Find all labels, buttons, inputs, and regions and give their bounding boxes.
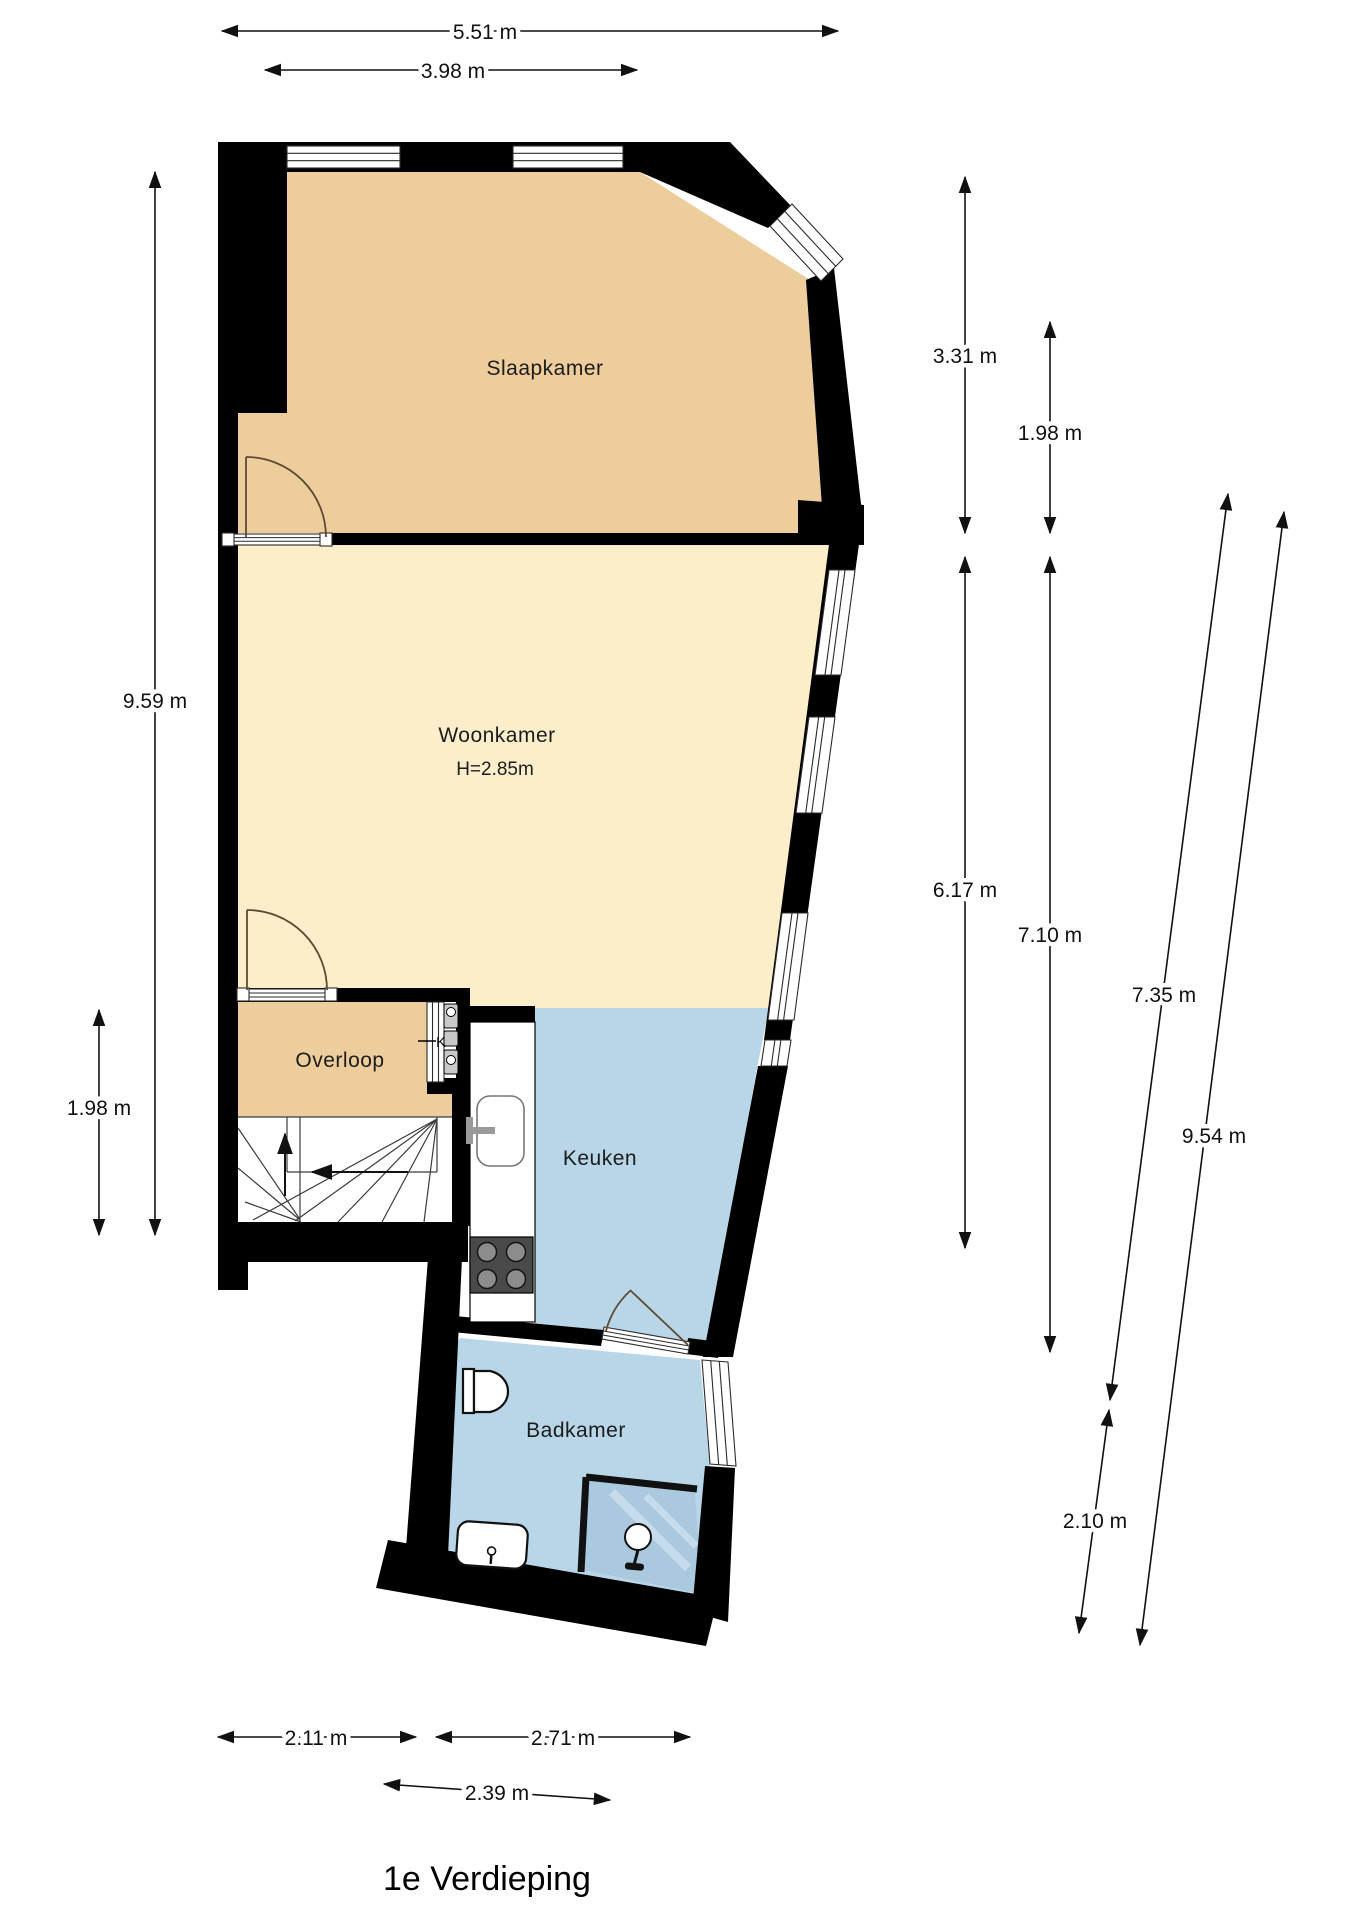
room-label-badkamer: Badkamer: [526, 1419, 626, 1442]
dim-label-right-outer3: 2.10 m: [1063, 1510, 1127, 1533]
window-top-right: [513, 146, 623, 168]
kitchen-fixtures: [466, 1022, 535, 1322]
wall-stairs-right: [452, 1094, 470, 1226]
wall-stairs-bottom: [218, 1222, 468, 1262]
dim-label-right-outer: 7.35 m: [1132, 984, 1196, 1007]
dim-line-right-outer2: [1140, 512, 1284, 1645]
wall-divider-slaap-woon: [330, 533, 812, 545]
room-label-woonkamer-height: H=2.85m: [456, 759, 534, 780]
dim-label-right-inner-mid2: 7.10 m: [1018, 924, 1082, 947]
floorplan-page: K: [0, 0, 1358, 1920]
dim-label-bottom-left: 2.11 m: [285, 1727, 348, 1750]
dim-label-right-inner-mid: 6.17 m: [933, 879, 997, 902]
dim-label-bottom-inner: 2.39 m: [465, 1782, 529, 1805]
dim-line-right-outer: [1110, 494, 1228, 1400]
washbasin: [456, 1521, 529, 1570]
toilet: [463, 1369, 508, 1413]
wall-left: [218, 142, 238, 1262]
room-label-woonkamer: Woonkamer: [438, 724, 555, 747]
wall-keuken-counter-top: [468, 1006, 535, 1022]
kitchen-stove: [470, 1237, 533, 1293]
dim-label-right-inner-top2: 1.98 m: [1018, 422, 1082, 445]
room-label-slaapkamer: Slaapkamer: [486, 357, 603, 380]
dim-label-left-inner: 1.98 m: [67, 1097, 131, 1120]
dim-label-top-inner: 3.98 m: [421, 60, 485, 83]
room-floors: [233, 172, 832, 1598]
shower-head: [625, 1524, 651, 1550]
window-keuken: [761, 1040, 791, 1066]
dim-label-left-outer: 9.59 m: [123, 690, 187, 713]
staircase: [238, 1117, 452, 1222]
room-label-keuken: Keuken: [563, 1147, 637, 1170]
room-woonkamer-floor: [238, 545, 830, 1009]
dim-label-right-inner-top: 3.31 m: [933, 345, 997, 368]
room-overloop-floor2: [427, 1094, 455, 1117]
dim-label-top-outer: 5.51 m: [453, 21, 517, 44]
floorplan-canvas: K: [0, 0, 1358, 1920]
meter-cabinet-label: K: [436, 1034, 446, 1051]
window-top-left: [287, 146, 400, 168]
kitchen-faucet-valve: [466, 1117, 473, 1144]
plan-title: 1e Verdieping: [383, 1860, 591, 1898]
room-slaapkamer-floor: [233, 172, 832, 533]
dim-label-bottom-right: 2.71 m: [531, 1727, 595, 1750]
dim-label-right-outer2: 9.54 m: [1182, 1125, 1246, 1148]
room-label-overloop: Overloop: [295, 1049, 384, 1072]
